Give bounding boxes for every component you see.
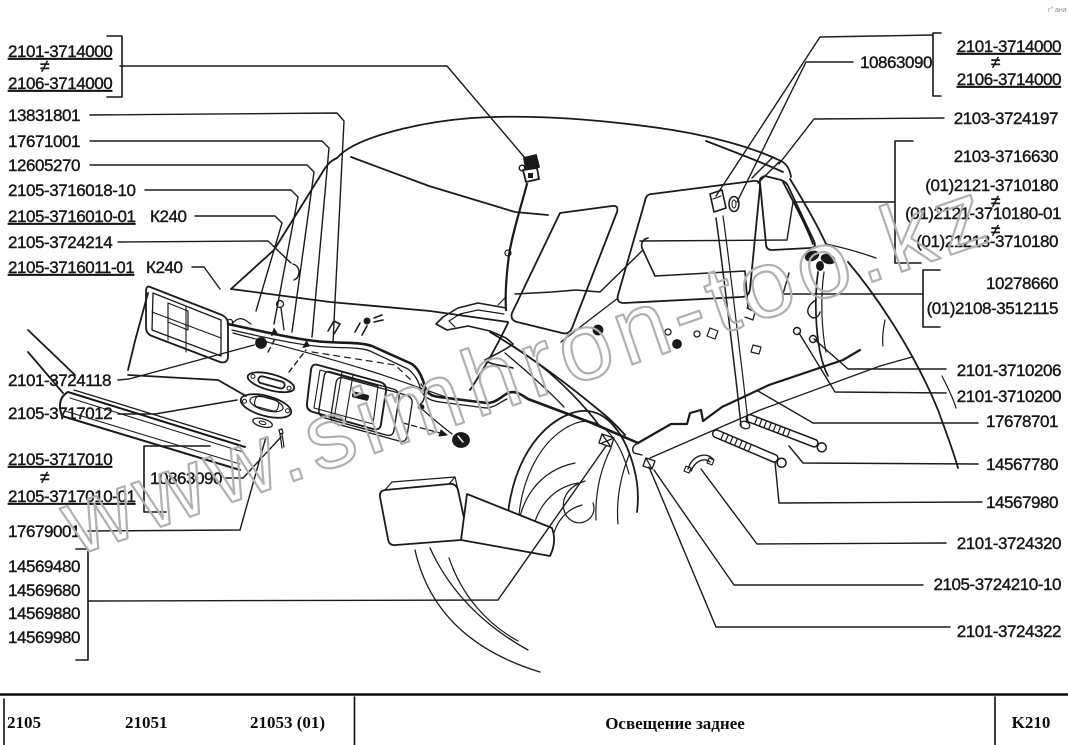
svg-text:2101-3724118: 2101-3724118 (8, 371, 111, 390)
svg-text:2103-3724197: 2103-3724197 (954, 109, 1058, 128)
svg-text:К240: К240 (150, 207, 186, 226)
svg-text:21051: 21051 (125, 713, 168, 732)
svg-text:13831801: 13831801 (8, 106, 80, 125)
svg-text:К240: К240 (146, 258, 182, 277)
svg-text:14569980: 14569980 (8, 628, 80, 647)
svg-text:21053 (01): 21053 (01) (250, 713, 325, 732)
svg-text:2106-3714000: 2106-3714000 (8, 74, 112, 93)
svg-text:2105-3716010-01: 2105-3716010-01 (8, 207, 135, 226)
svg-text:www.simhron-too.kz: www.simhron-too.kz (47, 158, 1005, 576)
svg-text:2101-3710206: 2101-3710206 (957, 361, 1061, 380)
svg-text:≠: ≠ (40, 56, 50, 76)
svg-text:2105: 2105 (7, 713, 41, 732)
svg-text:2105-3716011-01: 2105-3716011-01 (8, 258, 134, 277)
svg-text:2101-3714000: 2101-3714000 (8, 42, 112, 61)
svg-text:12605270: 12605270 (8, 156, 80, 175)
svg-text:Освещение заднее: Освещение заднее (605, 714, 745, 733)
svg-text:(01)2108-3512115: (01)2108-3512115 (927, 299, 1058, 318)
svg-text:17678701: 17678701 (986, 412, 1058, 431)
svg-text:2101-3710200: 2101-3710200 (957, 387, 1061, 406)
svg-text:14567780: 14567780 (986, 455, 1058, 474)
svg-text:14569480: 14569480 (8, 557, 80, 576)
svg-text:14567980: 14567980 (986, 493, 1058, 512)
svg-text:2105-3724214: 2105-3724214 (8, 233, 112, 252)
svg-text:17671001: 17671001 (8, 132, 80, 151)
svg-text:2101-3724322: 2101-3724322 (957, 622, 1061, 641)
svg-text:K210: K210 (1012, 713, 1051, 732)
svg-text:14569880: 14569880 (8, 604, 80, 623)
svg-text:2106-3714000: 2106-3714000 (957, 70, 1061, 89)
svg-text:гʺ ана: гʺ ана (1048, 6, 1067, 14)
svg-text:2101-3714000: 2101-3714000 (957, 37, 1061, 56)
svg-text:10863090: 10863090 (860, 53, 932, 72)
svg-text:2105-3724210-10: 2105-3724210-10 (934, 575, 1061, 594)
svg-text:10278660: 10278660 (986, 274, 1058, 293)
svg-text:≠: ≠ (991, 52, 1001, 72)
svg-text:2101-3724320: 2101-3724320 (957, 534, 1061, 553)
svg-text:2105-3716018-10: 2105-3716018-10 (8, 181, 135, 200)
svg-text:14569680: 14569680 (8, 581, 80, 600)
